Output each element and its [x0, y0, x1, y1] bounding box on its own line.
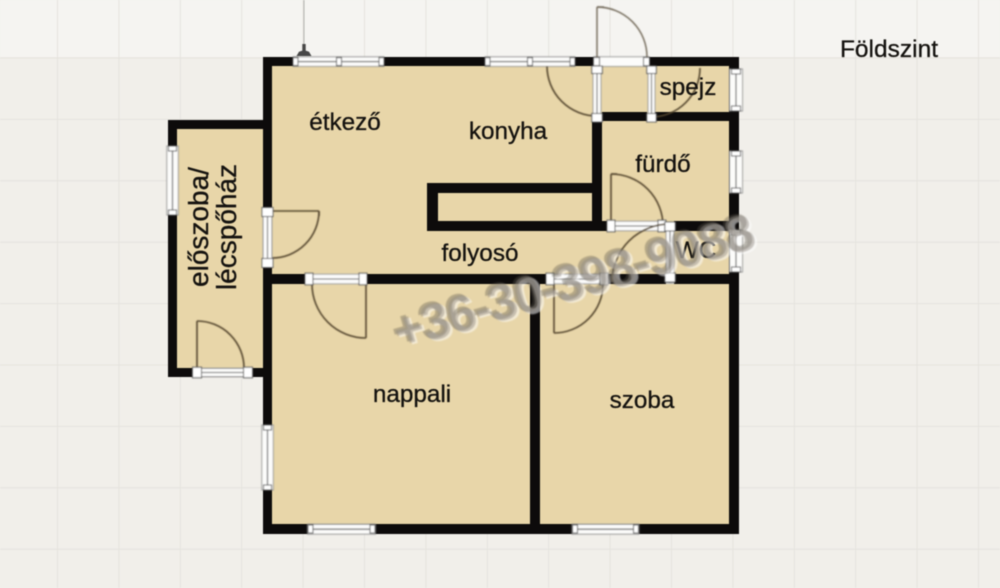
svg-text:konyha: konyha [469, 118, 548, 145]
svg-text:folyosó: folyosó [442, 240, 519, 267]
svg-text:lécspőház: lécspőház [211, 164, 242, 290]
svg-text:előszoba/: előszoba/ [183, 167, 214, 287]
svg-text:spejz: spejz [660, 74, 717, 101]
svg-text:Földszint: Földszint [840, 36, 938, 63]
svg-text:nappali: nappali [373, 381, 451, 408]
svg-text:szoba: szoba [610, 387, 675, 414]
svg-text:fürdő: fürdő [635, 151, 690, 178]
svg-text:étkező: étkező [309, 109, 381, 136]
